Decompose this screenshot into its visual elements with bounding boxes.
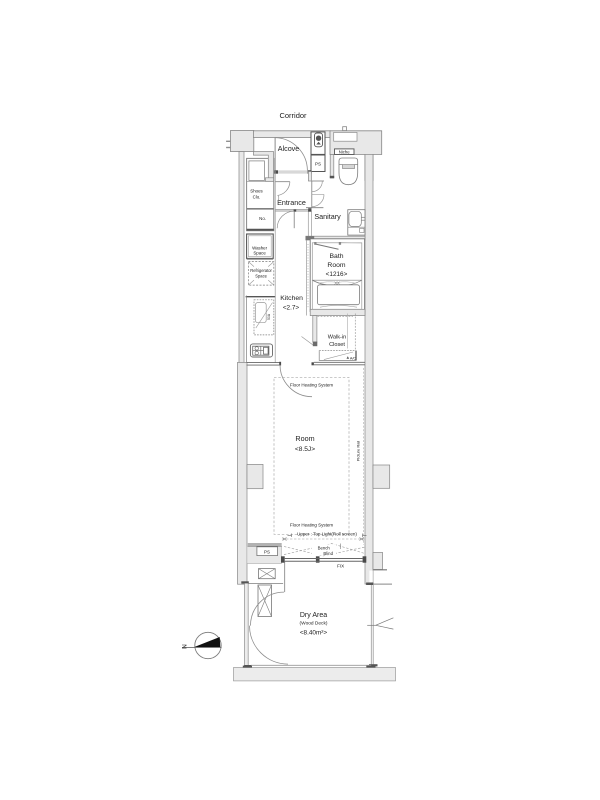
svg-text:Space: Space [253,251,266,256]
svg-text:N: N [182,644,189,649]
svg-text:Clo.: Clo. [253,194,261,199]
svg-text:Corridor: Corridor [279,111,307,120]
svg-text:Alcove: Alcove [278,144,300,153]
svg-text:<2.7>: <2.7> [283,305,300,312]
svg-text:Shoes: Shoes [250,189,263,194]
svg-text:Dry Area: Dry Area [300,612,327,619]
svg-text:Floor Heating System: Floor Heating System [290,523,334,528]
svg-text:<1216>: <1216> [326,271,348,278]
svg-text:PS: PS [315,162,321,167]
svg-text:Blind: Blind [323,551,333,556]
svg-text:A/C: A/C [350,356,357,360]
svg-text:Room: Room [327,262,345,269]
svg-text:Bath: Bath [330,253,344,260]
svg-text:<8.40m²>: <8.40m²> [300,630,328,637]
svg-text:Niche: Niche [339,150,351,155]
svg-text:Sanitary: Sanitary [314,212,341,221]
svg-text:Room: Room [295,434,314,443]
svg-text:(Wood Deck): (Wood Deck) [300,621,328,627]
svg-text:Upper : Top Light(Roll screen): Upper : Top Light(Roll screen) [297,532,357,537]
svg-text:Bench: Bench [318,545,331,550]
svg-text:50A: 50A [267,313,271,320]
svg-text:Entrance: Entrance [277,198,306,207]
svg-text:Space: Space [255,274,267,279]
svg-text:Kitchen: Kitchen [280,295,303,302]
svg-text:No.: No. [259,216,266,221]
svg-text:Refrigerator: Refrigerator [250,268,272,273]
svg-text:Floor Heating System: Floor Heating System [290,383,334,388]
svg-text:<8.5J>: <8.5J> [295,446,315,453]
svg-text:PS: PS [264,550,270,555]
svg-text:FIX: FIX [337,564,344,569]
svg-text:Walk-in: Walk-in [328,334,346,340]
svg-text:Closet: Closet [329,342,345,348]
svg-text:Picture Rail: Picture Rail [356,441,361,462]
